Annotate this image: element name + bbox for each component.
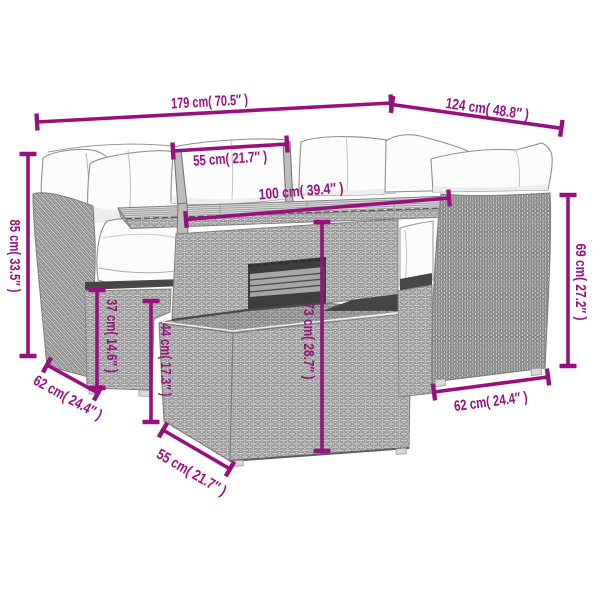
svg-text:85 cm( 33.5″ ): 85 cm( 33.5″ ) [7, 220, 24, 293]
svg-text:69 cm( 27.2″ ): 69 cm( 27.2″ ) [573, 244, 590, 321]
svg-text:37 cm( 14.6″ ): 37 cm( 14.6″ ) [104, 299, 121, 373]
svg-text:44 cm( 17.3″ ): 44 cm( 17.3″ ) [158, 324, 175, 397]
svg-text:73 cm( 28.7″ ): 73 cm( 28.7″ ) [301, 303, 318, 380]
